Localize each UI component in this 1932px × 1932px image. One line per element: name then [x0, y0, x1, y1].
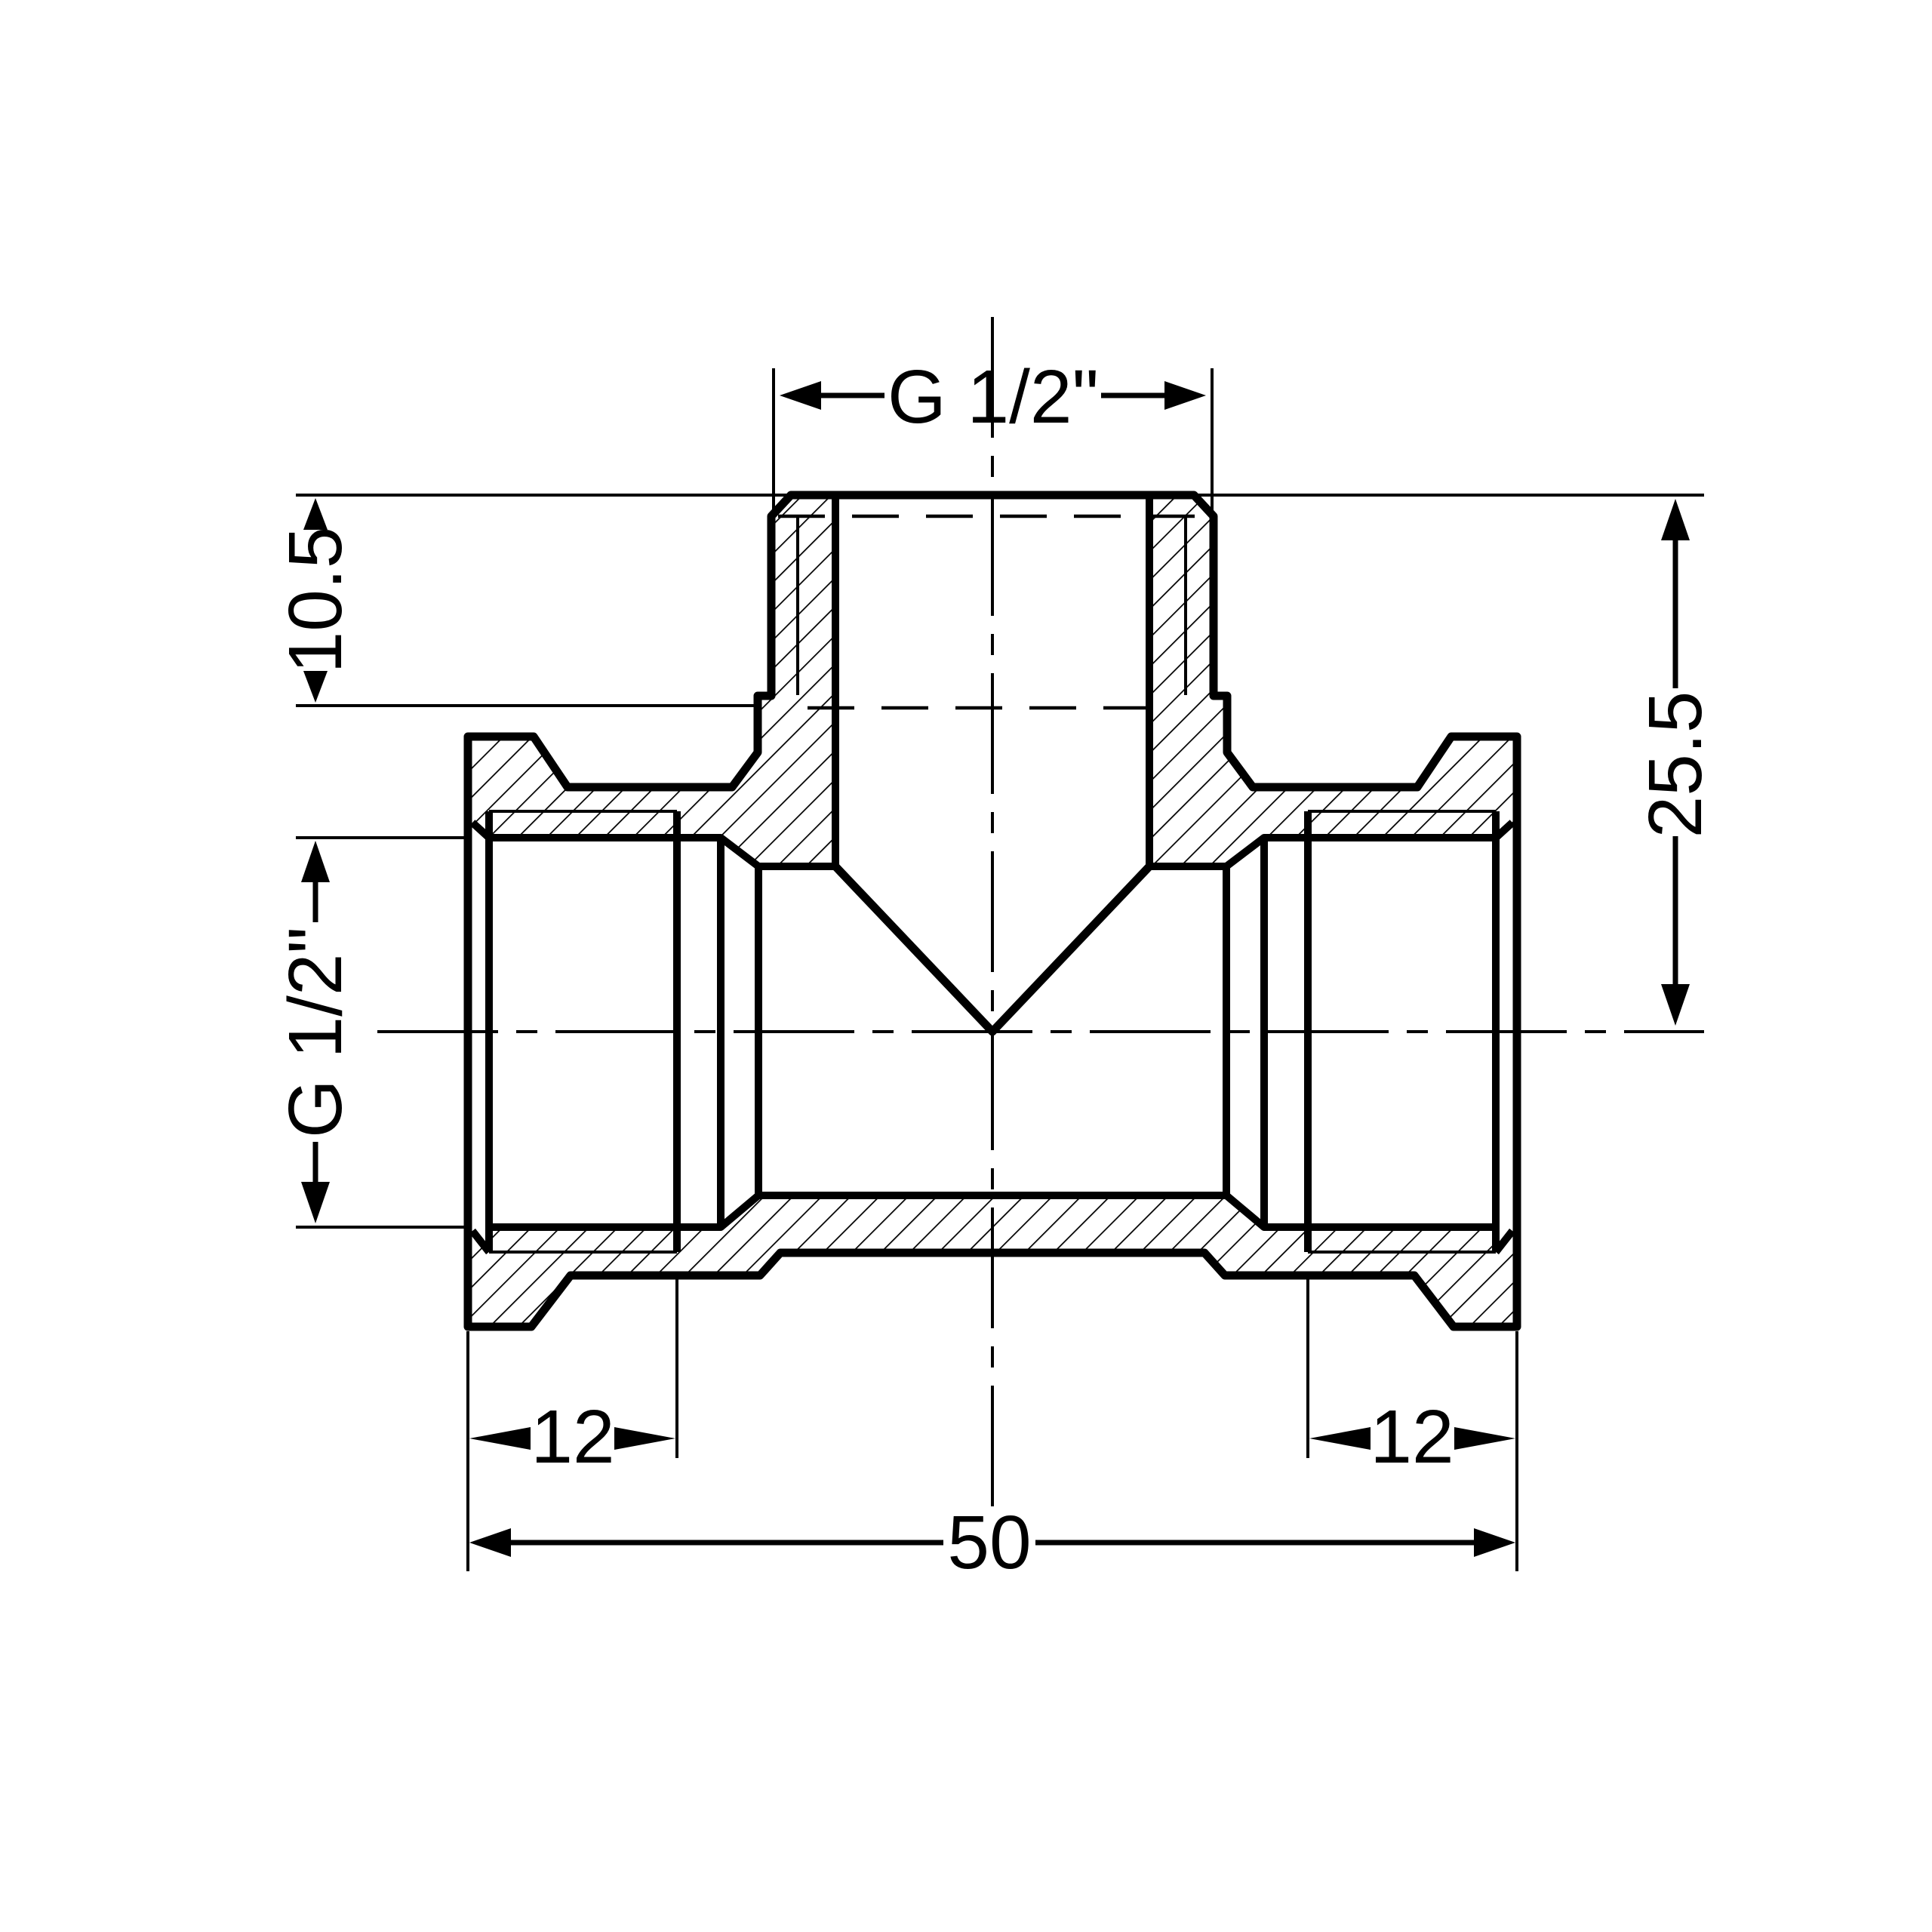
svg-text:G 1/2": G 1/2"	[888, 355, 1099, 439]
svg-text:12: 12	[1370, 1395, 1454, 1479]
svg-text:12: 12	[531, 1395, 614, 1479]
svg-text:25.5: 25.5	[1633, 691, 1718, 838]
svg-text:10.5: 10.5	[273, 527, 358, 674]
svg-text:50: 50	[947, 1500, 1031, 1585]
svg-text:G 1/2": G 1/2"	[273, 927, 358, 1138]
